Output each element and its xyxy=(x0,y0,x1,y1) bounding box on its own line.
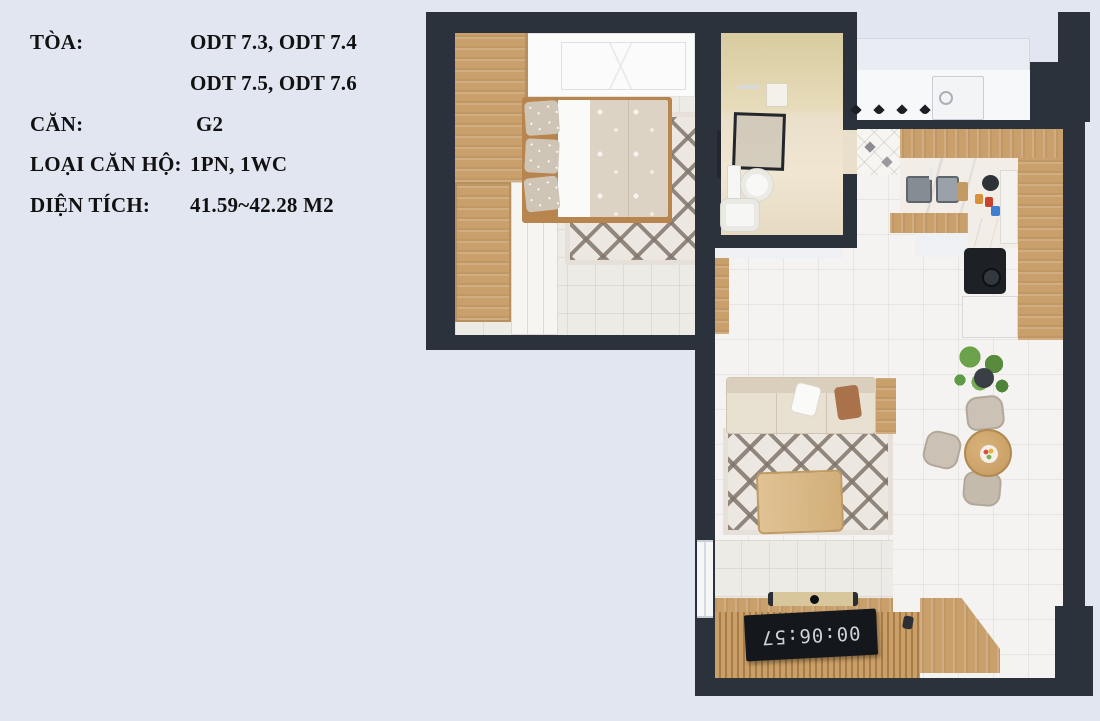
double-bed xyxy=(522,97,672,223)
kitchen-cabinet-face xyxy=(915,233,968,257)
pot-on-stove xyxy=(982,268,1001,287)
dining-chair xyxy=(964,394,1005,432)
floor-plan-page: { "info_panel": { "rows": [ {"label": "T… xyxy=(0,0,1100,721)
entry-tile-floor xyxy=(857,129,905,175)
sofa-cushion-seam xyxy=(826,393,827,435)
tv-wall-tiles xyxy=(713,540,893,598)
bed-duvet xyxy=(590,100,668,217)
fruit-plate xyxy=(980,445,998,463)
bathroom-wall-face xyxy=(715,248,843,258)
kitchen-sink-basin xyxy=(936,176,959,203)
wall-top-right-b xyxy=(1030,62,1060,122)
toilet-tank xyxy=(727,165,741,201)
wardrobe xyxy=(455,182,511,322)
entry-wall-top xyxy=(852,38,1030,72)
faucet-icon xyxy=(929,168,933,180)
towel-rail xyxy=(717,130,721,178)
sofa-cushion-seam xyxy=(776,393,777,435)
duvet-seam xyxy=(628,100,629,217)
kitchen-tall-cabinet xyxy=(1018,158,1063,340)
sofa-side-table xyxy=(876,378,896,434)
cooking-pan xyxy=(982,175,999,191)
shower-niche xyxy=(766,83,788,107)
living-room-window xyxy=(697,540,713,618)
wall-bedroom-left xyxy=(426,12,455,350)
tv-screen: 00:06:57 xyxy=(744,609,878,662)
bed-sheet xyxy=(558,100,590,217)
bed-pillow xyxy=(524,100,560,136)
wall-bottom xyxy=(695,678,1093,696)
dish-soap-bottle xyxy=(991,206,1000,216)
window-frame-line xyxy=(704,542,706,616)
kitchen-upper-cabinet xyxy=(900,128,1063,158)
wall-top xyxy=(426,12,857,33)
bathroom-sink xyxy=(720,198,760,232)
bed-pillow xyxy=(524,138,560,174)
dining-table xyxy=(964,429,1012,477)
wall-shelf xyxy=(715,258,729,334)
tv-clock-text: 00:06:57 xyxy=(761,621,862,648)
kitchen-counter-edge xyxy=(890,213,968,233)
wardrobe-headboard-panel xyxy=(455,33,528,182)
sofa-throw-blanket xyxy=(834,384,862,420)
spice-bottle xyxy=(975,194,983,204)
wall-top-right-a xyxy=(1058,12,1090,122)
bedroom-door-outline xyxy=(561,42,686,90)
wall-right xyxy=(1063,112,1085,612)
plant-pot xyxy=(974,368,994,388)
kitchen-sink-basin xyxy=(906,176,932,203)
cooktop xyxy=(964,248,1006,294)
shower-fixture xyxy=(737,85,759,89)
washing-machine xyxy=(932,76,984,120)
toilet-bowl xyxy=(740,168,774,202)
kitchen-base-cabinet xyxy=(962,296,1018,338)
kitchen-cabinet-door xyxy=(1000,170,1018,244)
bed-pillow xyxy=(523,175,560,212)
coffee-table xyxy=(756,470,844,535)
washing-machine-door-icon xyxy=(939,91,953,105)
bathroom-door-opening xyxy=(843,130,857,174)
wall-bedroom-bottom xyxy=(426,335,697,350)
cutting-board xyxy=(957,182,968,201)
floor-plan: 00:06:57 xyxy=(0,0,1100,721)
soundbar-lens-icon xyxy=(810,595,819,604)
soundbar xyxy=(768,592,858,606)
shower-glass xyxy=(732,112,786,171)
